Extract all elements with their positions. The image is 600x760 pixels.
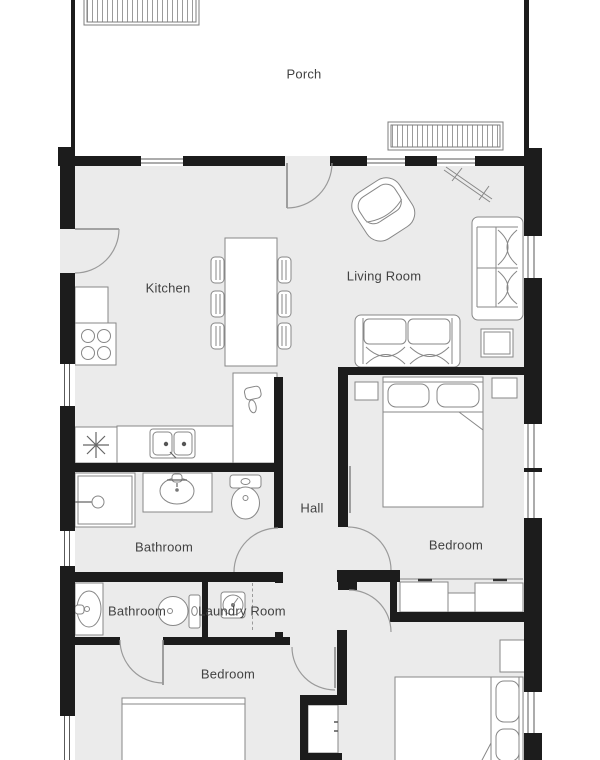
- room-label-laundry-room: Laundry Room: [198, 604, 286, 619]
- dining-table: [225, 238, 277, 366]
- nightstand: [492, 378, 517, 398]
- kitchen-double-sink-icon: [150, 429, 195, 458]
- window: [432, 156, 480, 166]
- porch-side-wall: [71, 0, 75, 148]
- porch-side-wall: [524, 0, 529, 148]
- room-label-bathroom-2: Bathroom: [108, 604, 166, 619]
- floor-plan-canvas: [0, 0, 600, 760]
- door-threshold: [60, 229, 75, 273]
- side-table: [481, 329, 513, 357]
- fridge-icon: [75, 427, 117, 463]
- floor-plan-page: Porch Kitchen Living Room Hall Bathroom …: [0, 0, 600, 760]
- bed-icon: [122, 698, 245, 760]
- room-label-bedroom-master: Bedroom: [429, 538, 483, 553]
- pedestal-sink-icon: [143, 473, 212, 512]
- window: [60, 712, 75, 760]
- window: [524, 420, 542, 522]
- window: [60, 527, 75, 570]
- toilet-icon: [230, 475, 261, 519]
- window: [137, 156, 187, 166]
- room-label-bedroom-2: Bedroom: [201, 667, 255, 682]
- stove-icon: [75, 323, 116, 365]
- nightstand: [355, 382, 378, 400]
- kitchen-counter: [75, 287, 108, 323]
- door-threshold: [285, 156, 330, 166]
- nightstand: [500, 640, 526, 672]
- room-label-hall: Hall: [300, 501, 323, 516]
- room-label-bathroom-1: Bathroom: [135, 540, 193, 555]
- double-bed-icon: [395, 677, 523, 760]
- window: [524, 232, 542, 282]
- room-label-kitchen: Kitchen: [146, 281, 191, 296]
- sofa-icon: [355, 315, 460, 367]
- window: [524, 688, 542, 737]
- room-label-living-room: Living Room: [347, 269, 421, 284]
- vanity-sink-icon: [75, 583, 103, 635]
- room-label-porch: Porch: [287, 67, 322, 82]
- loveseat-icon: [472, 217, 523, 320]
- window: [362, 156, 410, 166]
- window: [60, 360, 75, 410]
- double-bed-icon: [383, 377, 483, 507]
- closet: [308, 705, 338, 753]
